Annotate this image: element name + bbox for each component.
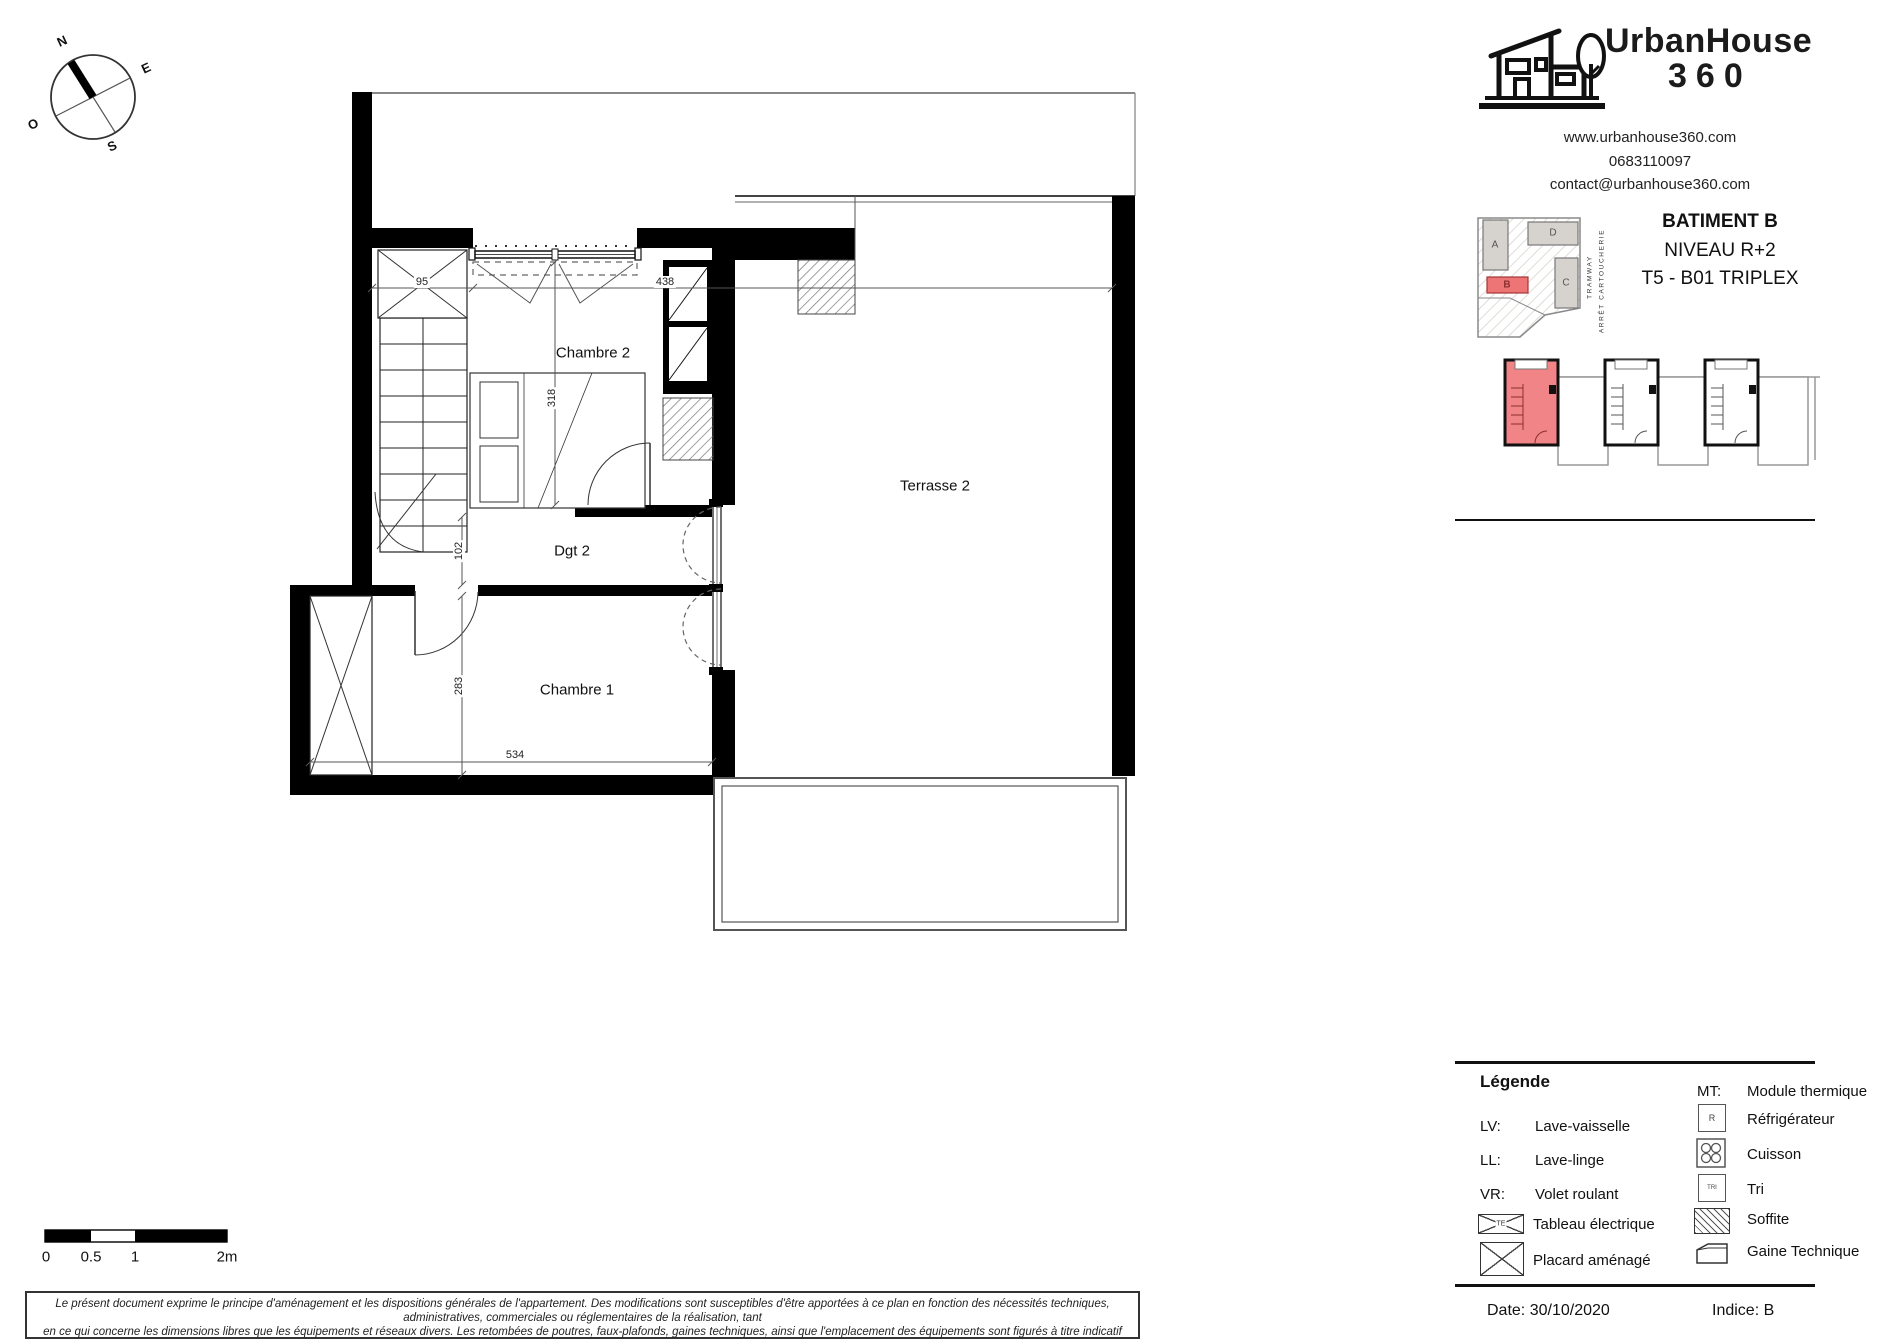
roof-overhang-lines xyxy=(352,93,1135,196)
legend-te-label: Tableau électrique xyxy=(1533,1216,1655,1233)
room-label-chambre2: Chambre 2 xyxy=(556,345,630,362)
door-chambre1 xyxy=(415,591,478,655)
refrigerator-icon-text: R xyxy=(1709,1113,1716,1123)
legend-gaine-label: Gaine Technique xyxy=(1747,1243,1859,1260)
legend-vr-abbr: VR: xyxy=(1480,1186,1505,1203)
legend-lv-abbr: LV: xyxy=(1480,1118,1501,1135)
room-label-chambre1: Chambre 1 xyxy=(540,682,614,699)
electrical-panel-icon: TE xyxy=(1478,1214,1524,1234)
fitted-closet-icon xyxy=(1480,1242,1524,1276)
date-value: 30/10/2020 xyxy=(1530,1302,1610,1319)
dim-283: 283 xyxy=(453,675,465,697)
legend-ll-abbr: LL: xyxy=(1480,1152,1501,1169)
legend-lv-label: Lave-vaisselle xyxy=(1535,1118,1630,1135)
dim-102: 102 xyxy=(453,540,465,562)
dim-438: 438 xyxy=(654,276,676,288)
indice-value: B xyxy=(1764,1302,1775,1319)
legend-title: Légende xyxy=(1480,1072,1550,1092)
closet-bottom-left xyxy=(310,596,372,775)
electrical-panel-icon-text: TE xyxy=(1496,1221,1507,1228)
site-block-c-label: C xyxy=(1562,278,1569,289)
brand-name: UrbanHouse xyxy=(1605,22,1812,61)
legend-mt-abbr: MT: xyxy=(1697,1083,1721,1100)
legend-vr-label: Volet roulant xyxy=(1535,1186,1618,1203)
site-block-b-label: B xyxy=(1503,280,1510,291)
level-minimap xyxy=(1505,360,1820,465)
legend-mt-label: Module thermique xyxy=(1747,1083,1867,1100)
indice-label: Indice: xyxy=(1712,1302,1759,1319)
cooktop-icon xyxy=(1696,1138,1726,1168)
terrace-railing xyxy=(714,778,1126,930)
dim-318: 318 xyxy=(546,387,558,409)
room-label-dgt2: Dgt 2 xyxy=(554,543,590,560)
floor-plan-document: N E O S Chambre 2 Dgt 2 Chambre 1 Terras… xyxy=(0,0,1900,1343)
date-row: Date: 30/10/2020 xyxy=(1487,1302,1610,1320)
scale-0-label: 0 xyxy=(42,1249,50,1266)
legend-refrigerateur-label: Réfrigérateur xyxy=(1747,1111,1835,1128)
title-building: BATIMENT B xyxy=(1570,208,1870,236)
waste-sorting-icon: TRI xyxy=(1698,1174,1726,1202)
site-block-d-label: D xyxy=(1549,228,1556,239)
date-label: Date: xyxy=(1487,1302,1525,1319)
legend-tri-label: Tri xyxy=(1747,1181,1764,1198)
soffit-icon xyxy=(1694,1208,1730,1234)
disclaimer-box: Le présent document exprime le principe … xyxy=(25,1291,1140,1339)
site-block-a-label: A xyxy=(1492,240,1499,251)
disclaimer-line1: Le présent document exprime le principe … xyxy=(27,1297,1138,1325)
technical-duct-icon xyxy=(1694,1240,1730,1266)
brand-website: www.urbanhouse360.com xyxy=(1470,126,1830,150)
brand-email: contact@urbanhouse360.com xyxy=(1470,173,1830,197)
title-level: NIVEAU R+2 xyxy=(1570,237,1870,265)
brand-phone: 0683110097 xyxy=(1470,150,1830,174)
dim-95: 95 xyxy=(414,276,430,288)
separator-lines xyxy=(1455,519,1815,1287)
drawing-layer xyxy=(0,0,1900,1343)
staircase xyxy=(375,318,467,552)
scale-2m-label: 2m xyxy=(217,1249,238,1266)
disclaimer-line2: en ce qui concerne les dimensions libres… xyxy=(27,1325,1138,1339)
scale-1-label: 1 xyxy=(131,1249,139,1266)
scale-bar xyxy=(45,1230,227,1242)
refrigerator-icon: R xyxy=(1698,1104,1726,1132)
title-unit: T5 - B01 TRIPLEX xyxy=(1570,265,1870,293)
indice-row: Indice: B xyxy=(1712,1302,1774,1320)
waste-sorting-icon-text: TRI xyxy=(1707,1185,1717,1191)
legend-ll-label: Lave-linge xyxy=(1535,1152,1604,1169)
legend-soffite-label: Soffite xyxy=(1747,1211,1789,1228)
room-label-terrasse2: Terrasse 2 xyxy=(900,478,970,495)
dim-534: 534 xyxy=(504,749,526,761)
tram-stop-label: ARRÊT CARTOUCHERIE xyxy=(1599,229,1606,333)
legend-placard-label: Placard aménagé xyxy=(1533,1252,1651,1269)
compass-rose xyxy=(51,55,135,139)
brand-name-360: 360 xyxy=(1668,57,1752,96)
tramway-label: TRAMWAY xyxy=(1587,255,1594,299)
scale-05-label: 0.5 xyxy=(81,1249,102,1266)
brand-house-icon xyxy=(1479,31,1605,106)
legend-cuisson-label: Cuisson xyxy=(1747,1146,1801,1163)
brand-contact-block: www.urbanhouse360.com 0683110097 contact… xyxy=(1470,126,1830,197)
